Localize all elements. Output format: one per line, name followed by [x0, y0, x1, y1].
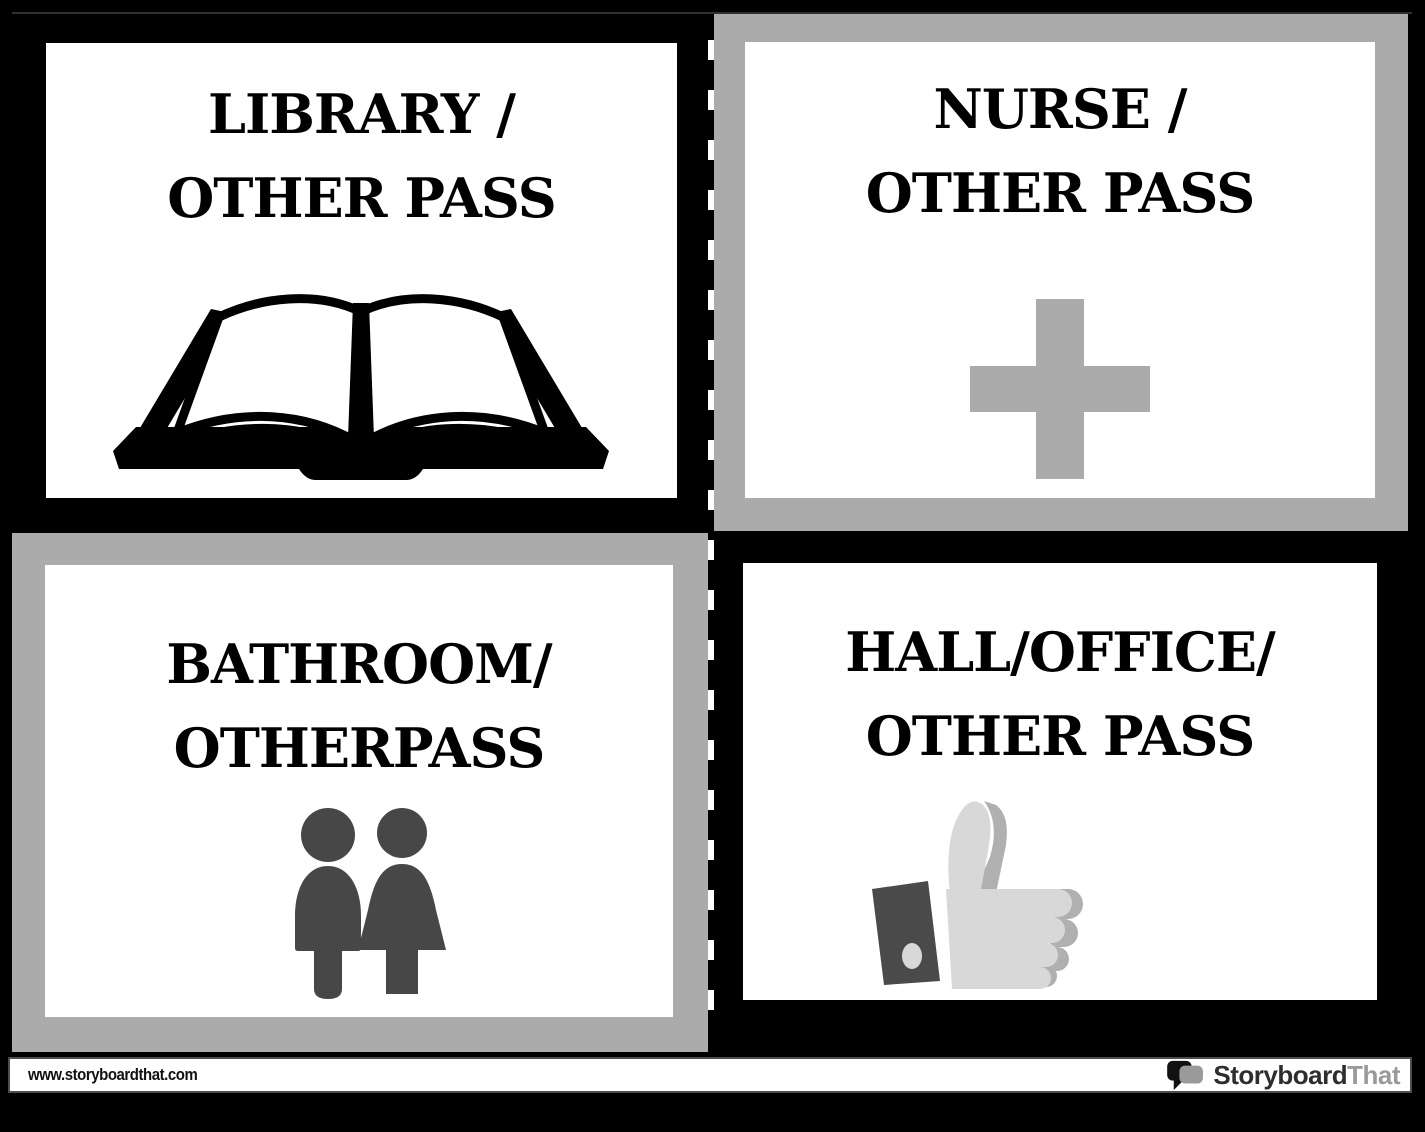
logo-text-storyboard: Storyboard — [1213, 1060, 1347, 1090]
storyboardthat-logo: StoryboardThat — [1166, 1059, 1400, 1091]
title-line-1: BATHROOM/ — [45, 623, 673, 707]
thumbs-up-icon — [858, 793, 1098, 993]
title-line-2: OTHER PASS — [743, 695, 1377, 779]
library-pass-title: LIBRARY / OTHER PASS — [46, 43, 677, 240]
website-url: www.storyboardthat.com — [28, 1065, 197, 1085]
bathroom-pass-title: BATHROOM/ OTHERPASS — [45, 565, 673, 790]
medical-cross-icon — [970, 299, 1150, 479]
title-line-2: OTHERPASS — [45, 707, 673, 791]
title-line-1: HALL/OFFICE/ — [743, 611, 1377, 695]
pass-card-bathroom: BATHROOM/ OTHERPASS — [45, 565, 673, 1017]
pass-card-nurse-frame: NURSE / OTHER PASS — [714, 14, 1408, 531]
pass-card-hall: HALL/OFFICE/ OTHER PASS — [743, 563, 1377, 1000]
title-line-2: OTHER PASS — [46, 157, 677, 241]
logo-text: StoryboardThat — [1213, 1060, 1400, 1091]
pass-card-bathroom-frame: BATHROOM/ OTHERPASS — [12, 533, 708, 1052]
restroom-people-icon — [280, 798, 450, 1013]
pass-card-nurse: NURSE / OTHER PASS — [745, 42, 1375, 498]
hall-pass-poster: LIBRARY / OTHER PASS NURSE / OTHER PASS — [0, 0, 1425, 1132]
open-book-icon — [111, 281, 611, 486]
footer-banner: www.storyboardthat.com StoryboardThat — [8, 1057, 1412, 1093]
title-line-1: NURSE / — [745, 68, 1375, 152]
cross-horizontal-bar — [970, 366, 1150, 412]
nurse-pass-title: NURSE / OTHER PASS — [745, 42, 1375, 235]
hall-pass-title: HALL/OFFICE/ OTHER PASS — [743, 563, 1377, 778]
logo-text-that: That — [1347, 1060, 1400, 1090]
speech-bubbles-icon — [1166, 1059, 1206, 1091]
pass-card-library: LIBRARY / OTHER PASS — [46, 43, 677, 498]
title-line-2: OTHER PASS — [745, 152, 1375, 236]
title-line-1: LIBRARY / — [46, 73, 677, 157]
